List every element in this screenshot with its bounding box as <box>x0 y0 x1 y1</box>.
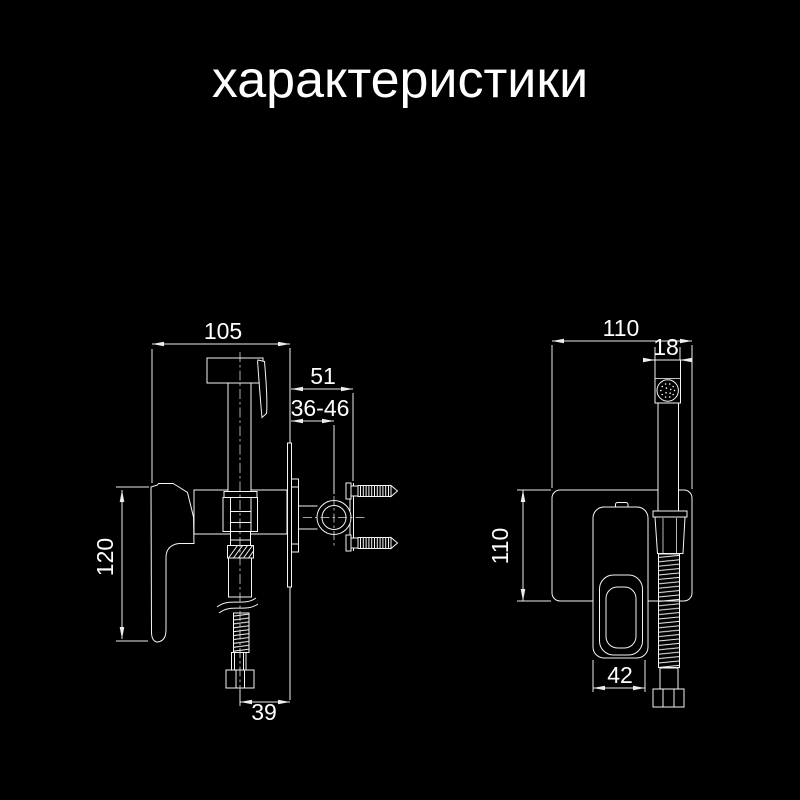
sprayer-trigger <box>258 360 267 418</box>
mount-flange <box>292 479 299 552</box>
dim-51-label: 51 <box>310 363 336 389</box>
sprayer-handle-front <box>658 403 679 511</box>
dim-18-label: 18 <box>653 334 679 360</box>
dim-36-46-label: 36-46 <box>291 395 350 421</box>
holder-cup <box>653 511 687 554</box>
dim-120: 120 <box>92 487 149 641</box>
dim-39: 39 <box>240 690 290 725</box>
spray-face <box>657 380 678 401</box>
dim-42-label: 42 <box>607 662 633 688</box>
dim-105-label: 105 <box>204 318 242 344</box>
hose-nut-front <box>653 689 684 707</box>
side-view: 105 51 36-46 120 <box>92 318 398 725</box>
dim-51: 51 <box>291 363 353 481</box>
threaded-coupling <box>228 546 254 559</box>
dim-42: 42 <box>593 660 645 692</box>
holder-opening-inner <box>606 587 636 648</box>
break-symbol <box>217 598 258 613</box>
dim-36-46: 36-46 <box>291 395 350 494</box>
wall-plate <box>288 443 292 587</box>
dim-18: 18 <box>644 334 691 360</box>
technical-drawing: 105 51 36-46 120 <box>0 0 800 800</box>
dim-39-label: 39 <box>251 699 277 725</box>
sprayer-head <box>207 358 263 383</box>
front-view: 110 18 110 <box>487 315 692 707</box>
dim-105: 105 <box>152 318 290 483</box>
dim-110w-label: 110 <box>603 315 640 341</box>
sprayer-tube <box>228 382 251 492</box>
dim-110-height: 110 <box>487 490 551 601</box>
dim-120-label: 120 <box>92 538 118 576</box>
spec-screen: характеристики <box>0 0 800 800</box>
dim-110h-label: 110 <box>487 528 513 565</box>
lever-handle <box>151 484 194 643</box>
